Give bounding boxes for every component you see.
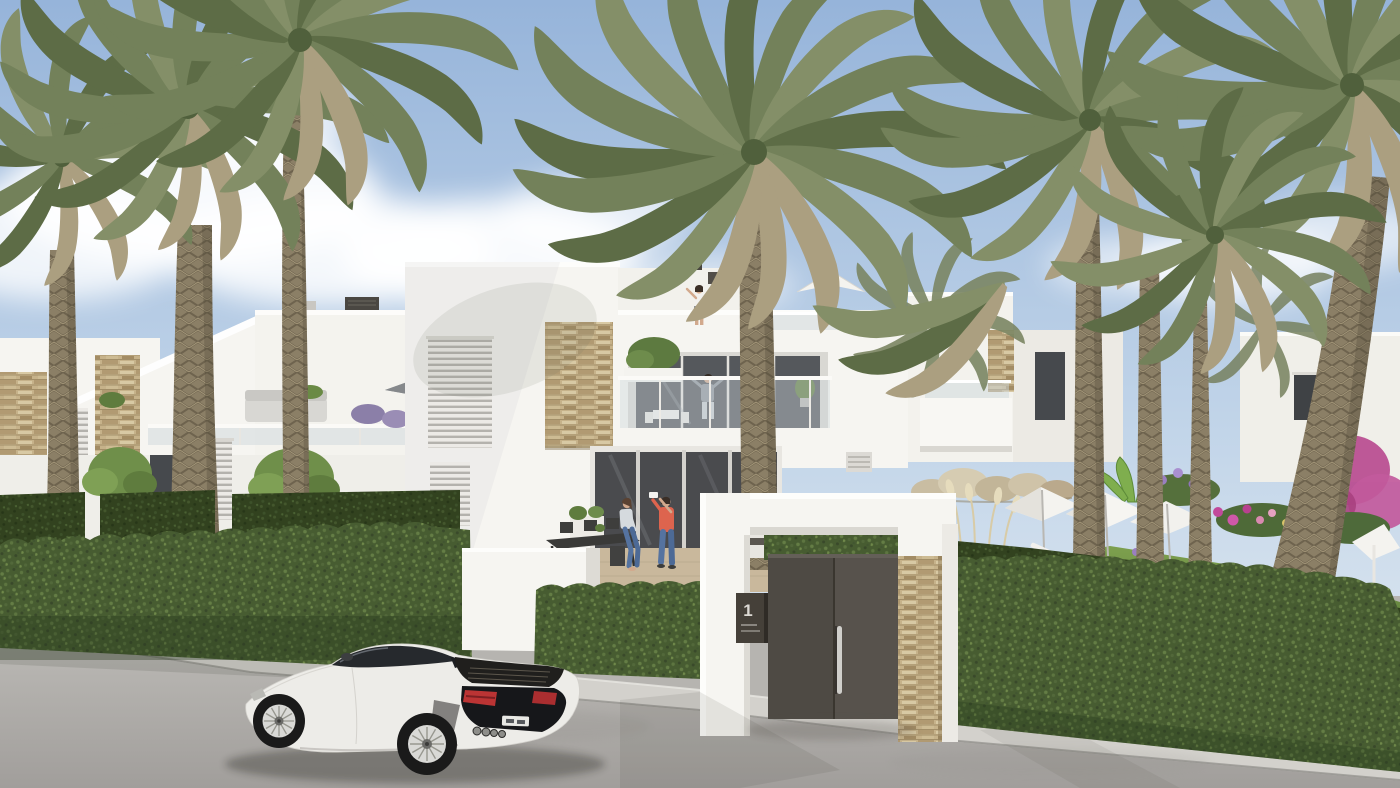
phone [649, 492, 658, 498]
license-plate [502, 716, 529, 727]
door-handle [837, 626, 842, 694]
entrance-gate: 1 [700, 493, 958, 742]
gate-post-right [942, 524, 958, 742]
hedge-patio [534, 581, 726, 680]
planter-plant [99, 392, 125, 408]
car-wheel-front [253, 694, 305, 748]
gate-plaque: 1 [736, 593, 768, 643]
stone-clad-panel [0, 372, 47, 468]
gate-number: 1 [743, 601, 752, 620]
side-mirror [341, 653, 353, 661]
balcony [920, 398, 1012, 448]
lavender-plant [351, 404, 385, 424]
window [1035, 352, 1065, 420]
car-taillight-right [532, 691, 557, 705]
gate-pillar-stone [898, 556, 944, 742]
architectural-render: 1 [0, 0, 1400, 788]
gate-door [768, 554, 900, 719]
car-wheel-rear [397, 713, 457, 775]
